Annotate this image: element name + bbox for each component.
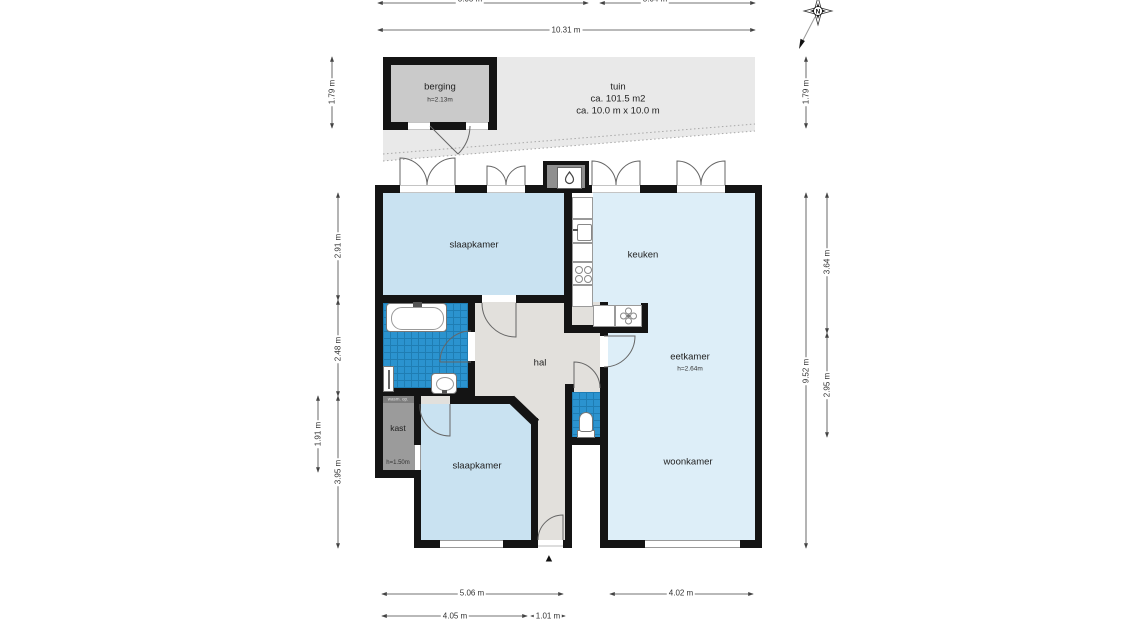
dim-top-seg-right: 5.04 m (641, 0, 669, 4)
room-label-hal: hal (534, 358, 547, 369)
wall (531, 418, 538, 548)
dim-bottom-slaapkamer: 4.05 m (441, 612, 469, 621)
berging-door-opening (408, 122, 430, 130)
ventilation-fan-icon (616, 306, 641, 326)
flame-icon (558, 168, 581, 188)
wall (375, 185, 383, 478)
dim-left-tuin: 1.79 m (328, 78, 337, 106)
room-label-slaapkamer-2: slaapkamer (452, 461, 501, 472)
wall (375, 295, 482, 303)
bathtub-basin (391, 307, 444, 330)
room-slaapkamer-2 (421, 404, 531, 540)
room-label-kast: kast (390, 423, 406, 433)
radiator-detail (388, 370, 390, 389)
wall (641, 303, 648, 333)
french-door-opening (677, 185, 725, 193)
wall (600, 367, 608, 548)
toilet-bowl (579, 412, 593, 432)
room-label-keuken: keuken (628, 250, 659, 261)
room-size-tuin: ca. 10.0 m x 10.0 m (576, 106, 659, 117)
dim-right-eetkamer: 2.95 m (823, 371, 832, 399)
bathtub-faucet-icon (413, 302, 422, 307)
kitchen-counter (572, 197, 593, 219)
wall (383, 57, 391, 130)
property-boundary-dotted-line (383, 131, 755, 161)
dim-bottom-entrance: 1.01 m (534, 612, 562, 621)
wall (450, 396, 514, 404)
ventilation-box (615, 305, 642, 327)
doorway-strip (420, 396, 450, 404)
wall (640, 185, 677, 193)
dim-bottom-house-left: 5.06 m (458, 589, 486, 598)
room-label-berging: berging (424, 82, 456, 93)
dim-left-badkamer: 2.48 m (334, 335, 343, 363)
room-eetkamer-woonkamer (608, 333, 755, 540)
wall (430, 122, 466, 130)
boiler-unit (557, 167, 582, 189)
wall (468, 302, 475, 332)
room-label-eetkamer: eetkamer (670, 352, 710, 363)
compass-icon: N (799, 0, 832, 49)
wall (608, 540, 645, 548)
wall (414, 396, 421, 445)
kitchen-sink (572, 219, 593, 243)
window (645, 540, 740, 548)
bathtub (386, 303, 447, 332)
room-area-tuin: ca. 101.5 m2 (591, 94, 646, 105)
french-door-opening (487, 185, 525, 193)
kitchen-counter (593, 305, 615, 327)
kitchen-counter (572, 285, 593, 307)
room-label-slaapkamer-1: slaapkamer (449, 240, 498, 251)
wall (488, 122, 497, 130)
wall (383, 122, 408, 130)
french-door-opening (400, 185, 455, 193)
dim-right-total: 9.52 m (802, 357, 811, 385)
wall (455, 185, 487, 193)
dim-top-total: 10.31 m (550, 26, 583, 35)
room-height-berging: h=2.13m (427, 97, 452, 104)
burner-icon (575, 275, 583, 283)
washbasin (431, 373, 457, 394)
burner-icon (584, 266, 592, 274)
room-hal (475, 302, 600, 404)
compass-north-label: N (816, 9, 821, 16)
room-height-eetkamer: h=2.64m (677, 366, 702, 373)
washbasin-faucet-icon (442, 390, 447, 394)
wall (740, 540, 762, 548)
wall (564, 193, 572, 333)
wall (563, 540, 572, 548)
floorplan-canvas: N berging h=2.13m tuin ca. 101.5 m2 ca. … (0, 0, 1140, 624)
dim-bottom-house-right: 4.02 m (667, 589, 695, 598)
dim-left-slaapkamer: 2.91 m (334, 232, 343, 260)
window (440, 540, 503, 548)
berging-door-opening (466, 122, 488, 130)
burner-icon (575, 266, 583, 274)
room-height-kast: h=1.50m (386, 460, 410, 466)
wall (565, 384, 572, 548)
french-door-opening (592, 185, 640, 193)
wall (565, 437, 608, 445)
window (414, 445, 421, 470)
entrance-arrow-icon: ▲ (544, 554, 555, 565)
hal-corridor (538, 404, 565, 540)
washbasin-bowl (436, 377, 454, 391)
stove (572, 262, 593, 285)
dim-left-kast: 1.91 m (314, 420, 323, 448)
wall (414, 540, 440, 548)
dim-right-keuken: 3.64 m (823, 248, 832, 276)
wall (489, 57, 497, 130)
room-berging (383, 57, 497, 130)
faucet-icon (573, 229, 578, 231)
room-label-woonkamer: woonkamer (663, 457, 712, 468)
dim-right-tuin: 1.79 m (802, 78, 811, 106)
wall (503, 540, 538, 548)
dim-left-bottom: 3.95 m (334, 458, 343, 486)
wall (414, 470, 421, 548)
sink-basin (577, 224, 592, 241)
wall (383, 57, 497, 65)
wall (755, 185, 762, 548)
kitchen-counter (572, 243, 593, 262)
burner-icon (584, 275, 592, 283)
washer-note: wasm. op. (388, 397, 409, 402)
radiator (383, 366, 394, 392)
dim-top-seg-left: 5.05 m (456, 0, 484, 4)
room-label-tuin: tuin (610, 82, 625, 93)
